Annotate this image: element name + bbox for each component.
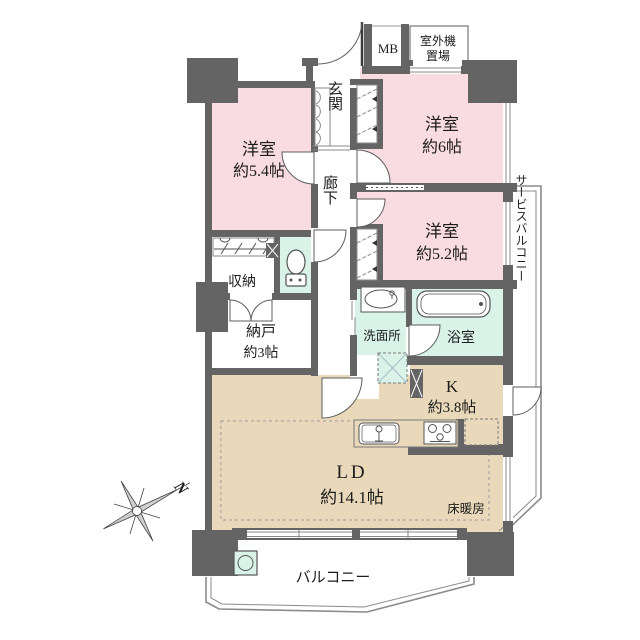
storage-fold-door-left	[230, 300, 251, 321]
kitchen-sink	[359, 423, 399, 444]
balcony-slop-sink	[234, 551, 257, 575]
balcony-label: バルコニー	[296, 570, 371, 586]
window-living-bottom-right	[360, 530, 457, 538]
kitchen-counter	[354, 419, 498, 447]
outdoor-unit-label-line2: 置場	[426, 49, 450, 63]
pillar-bottom-left	[192, 530, 238, 576]
compass-north-label: N	[170, 478, 192, 500]
window-living-bottom-left	[247, 530, 352, 538]
pillar-top-right	[468, 60, 517, 103]
kitchen-name: K	[446, 377, 459, 396]
pipe-shaft-1	[266, 243, 279, 258]
storage-size: 約3帖	[244, 345, 279, 361]
service-balcony-label: サービスバルコニー	[514, 174, 528, 282]
window-living-right	[503, 457, 513, 521]
kitchen-stove	[424, 422, 456, 444]
living-dining-size: 約14.1帖	[320, 488, 384, 507]
bedroom52-closet	[357, 229, 377, 280]
open-wall-dotted	[366, 185, 424, 190]
floorplan-page: N 洋室 約5.4帖 洋室 約6帖 洋室 約5.2帖 玄関 廊下 収納 納戸 約…	[0, 0, 640, 640]
outdoor-unit-label-line1: 室外機	[420, 33, 456, 48]
closet-hanger	[213, 238, 274, 256]
washer-space	[378, 353, 407, 383]
refrigerator-space	[465, 419, 498, 445]
kitchen-floor	[410, 363, 505, 377]
bedroom-6-name: 洋室	[425, 115, 459, 134]
meter-box-label: MB	[378, 41, 399, 56]
bedroom-6-size: 約6帖	[422, 138, 462, 156]
bathroom-label: 浴室	[447, 329, 475, 346]
bathtub	[417, 291, 490, 317]
toilet-door	[314, 230, 346, 262]
bedroom-54-size: 約5.4帖	[233, 162, 285, 180]
floor-heating-label: 床暖房	[447, 501, 485, 516]
hallway-label: 廊下	[321, 175, 338, 205]
storage-fold-door-right	[251, 300, 272, 321]
entrance-closet	[357, 85, 377, 143]
bedroom-52-size: 約5.2帖	[416, 245, 468, 263]
window-bedroom52-right	[503, 202, 513, 265]
entrance-door-arc	[318, 22, 362, 64]
window-bedroom6-right	[503, 103, 513, 183]
closet-label: 収納	[228, 274, 256, 290]
washroom-label: 洗面所	[363, 329, 401, 343]
bedroom-54-name: 洋室	[242, 140, 276, 159]
compass: N	[87, 453, 205, 559]
floorplan-drawing: N 洋室 約5.4帖 洋室 約6帖 洋室 約5.2帖 玄関 廊下 収納 納戸 約…	[0, 0, 640, 640]
bedroom-52-name: 洋室	[425, 222, 459, 241]
pipe-shaft-2	[410, 369, 423, 398]
pillar-top-left	[187, 58, 238, 103]
living-dining-name: LD	[336, 462, 367, 483]
toilet-fixture	[286, 250, 306, 286]
kitchen-size: 約3.8帖	[428, 399, 477, 416]
window-bedroom6-top	[410, 66, 461, 74]
storage-name: 納戸	[246, 323, 276, 340]
pillar-bottom-right	[467, 532, 514, 576]
service-balcony-door	[513, 387, 541, 415]
entrance-label: 玄関	[326, 81, 343, 112]
washbasin	[361, 287, 405, 312]
